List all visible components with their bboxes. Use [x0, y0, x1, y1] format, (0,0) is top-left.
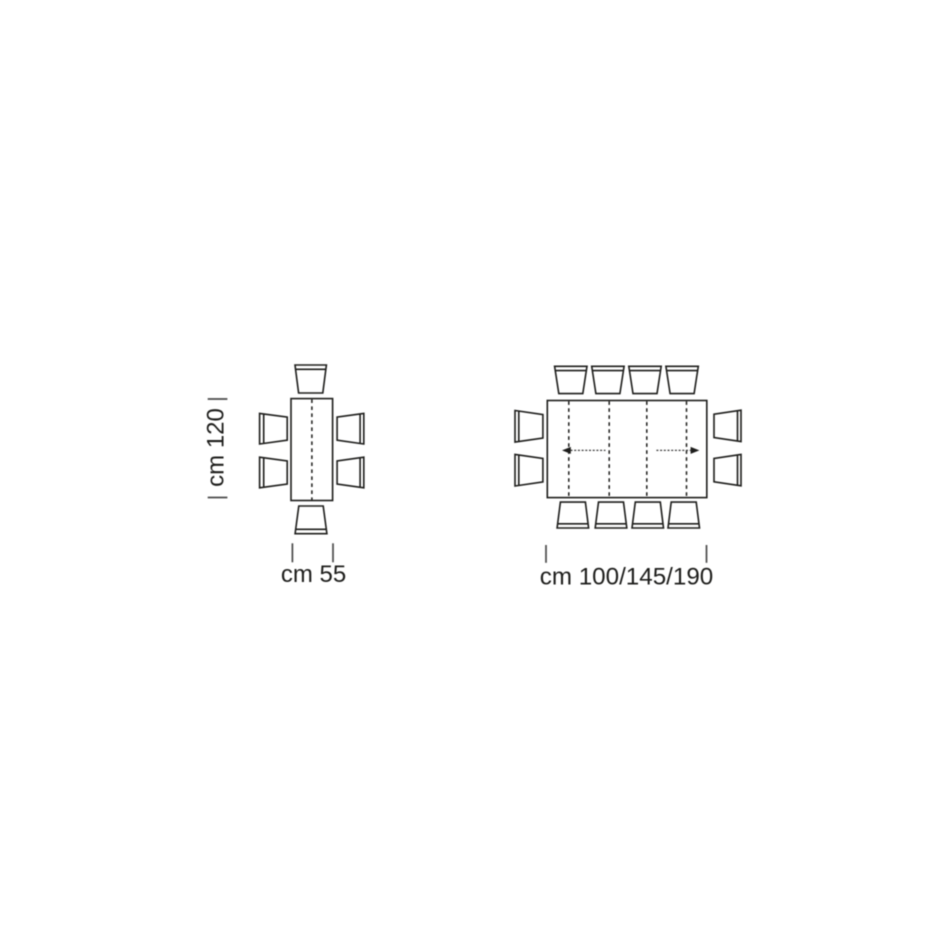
svg-text:cm 55: cm 55: [281, 561, 346, 588]
svg-text:cm 120: cm 120: [203, 408, 230, 487]
svg-text:cm 100/145/190: cm 100/145/190: [540, 564, 713, 591]
